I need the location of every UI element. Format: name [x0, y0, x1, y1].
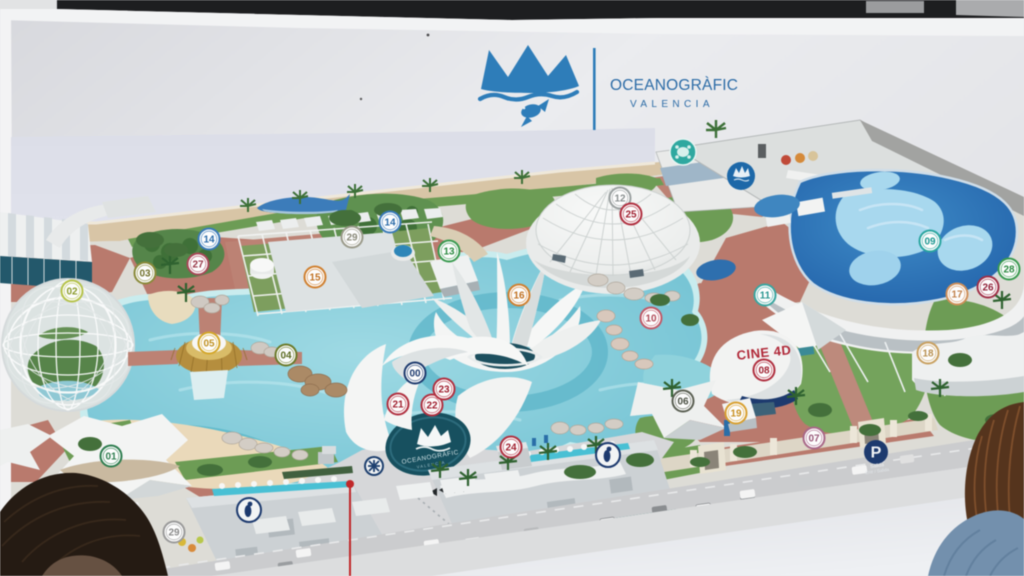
svg-text:OCEANOGRÀFIC: OCEANOGRÀFIC: [610, 77, 738, 94]
svg-text:24: 24: [505, 443, 517, 454]
svg-text:00: 00: [409, 369, 421, 380]
svg-text:14: 14: [203, 235, 215, 246]
svg-text:05: 05: [203, 339, 215, 350]
svg-text:28: 28: [1003, 265, 1015, 276]
svg-text:16: 16: [513, 291, 525, 302]
svg-text:27: 27: [192, 260, 204, 271]
svg-text:09: 09: [924, 237, 936, 248]
svg-text:17: 17: [951, 290, 963, 301]
svg-text:15: 15: [309, 273, 321, 284]
svg-text:02: 02: [66, 287, 78, 298]
svg-text:26: 26: [982, 283, 994, 294]
svg-text:13: 13: [443, 247, 455, 258]
svg-text:25: 25: [625, 210, 637, 221]
svg-text:06: 06: [677, 397, 689, 408]
svg-text:29: 29: [168, 528, 180, 539]
svg-text:P: P: [871, 445, 882, 462]
svg-text:04: 04: [280, 351, 292, 362]
svg-text:18: 18: [922, 349, 934, 360]
svg-text:23: 23: [438, 385, 450, 396]
svg-text:21: 21: [392, 400, 404, 411]
svg-text:11: 11: [760, 291, 771, 302]
svg-text:VALENCIA: VALENCIA: [630, 99, 714, 110]
svg-text:14: 14: [384, 218, 396, 229]
svg-text:29: 29: [346, 233, 358, 244]
svg-text:08: 08: [758, 366, 770, 377]
svg-text:01: 01: [105, 452, 117, 463]
svg-text:19: 19: [730, 409, 742, 420]
svg-text:22: 22: [426, 401, 438, 412]
svg-text:10: 10: [645, 314, 657, 325]
svg-text:07: 07: [808, 434, 820, 445]
svg-text:03: 03: [139, 269, 151, 280]
svg-text:12: 12: [614, 194, 626, 205]
